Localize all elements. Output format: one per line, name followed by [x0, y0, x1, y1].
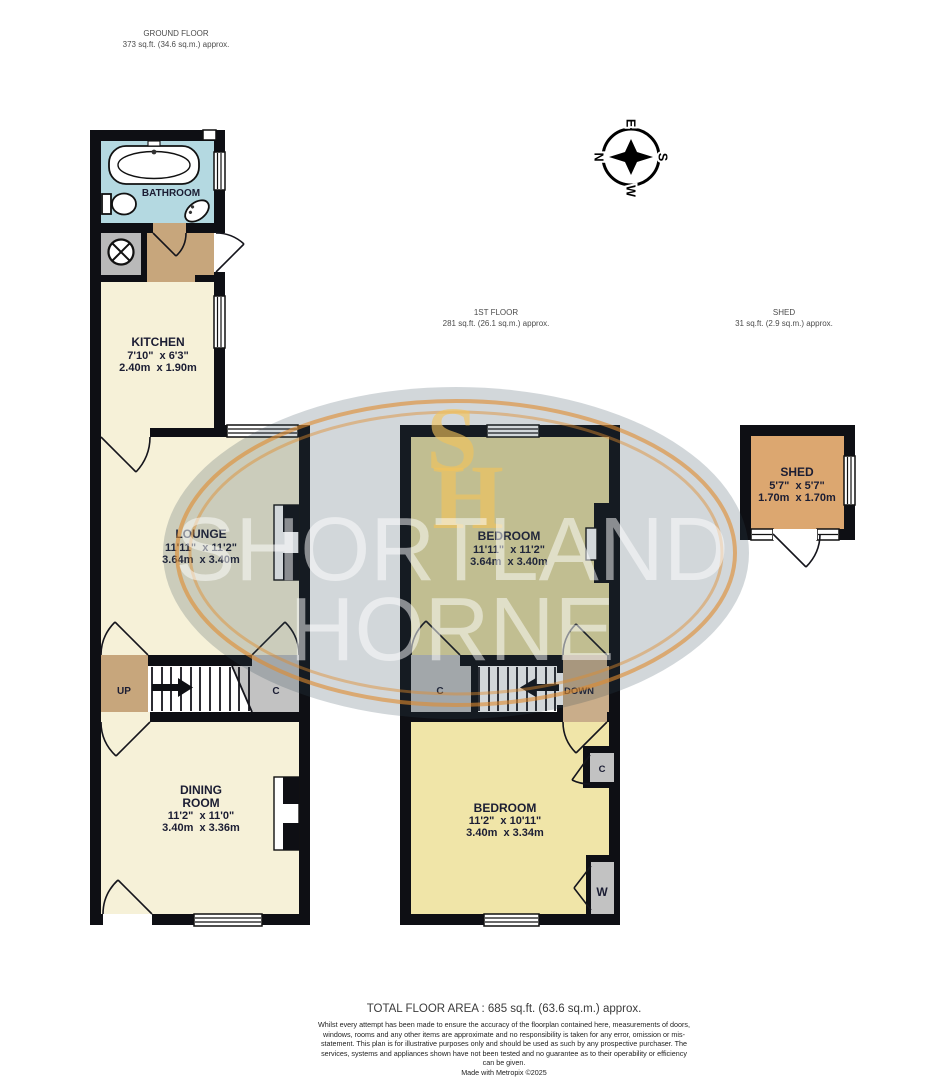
window	[214, 296, 225, 348]
lobby-area	[147, 233, 214, 282]
bathroom-label: BATHROOM	[142, 188, 200, 199]
cupboard-label: C	[272, 686, 279, 697]
bathtub-icon	[109, 141, 199, 184]
shed-dims-metric: 1.70m x 1.70m	[758, 492, 836, 504]
compass-north-label: N	[592, 152, 606, 161]
disclaimer-text: Whilst every attempt has been made to en…	[318, 1020, 690, 1068]
door-opening	[101, 425, 150, 437]
compass-icon: E N S W	[592, 119, 670, 197]
window	[484, 914, 539, 926]
exterior-door-gap	[103, 914, 152, 925]
shortland-horne-watermark: S H SHORTLAND HORNE	[163, 387, 749, 719]
compass-south-label: S	[656, 153, 670, 161]
exterior-door-gap	[214, 233, 225, 272]
bedroom2-dims-metric: 3.40m x 3.34m	[466, 827, 544, 839]
metropix-credit: Made with Metropix ©2025	[318, 1068, 690, 1078]
dining-dims-imperial: 11'2" x 11'0"	[168, 810, 234, 822]
window	[203, 130, 216, 140]
dining-label-1: DINING	[180, 783, 222, 797]
footer: TOTAL FLOOR AREA : 685 sq.ft. (63.6 sq.m…	[318, 1003, 690, 1078]
kitchen-label: KITCHEN	[131, 335, 184, 349]
door-opening	[153, 223, 186, 234]
compass-star	[609, 139, 653, 175]
exterior-door-gap	[773, 529, 817, 540]
shed-dims-imperial: 5'7" x 5'7"	[769, 480, 824, 492]
wall	[195, 275, 214, 282]
compass-west-label: W	[624, 185, 638, 197]
shed-plan: SHED 5'7" x 5'7" 1.70m x 1.70m	[740, 425, 855, 567]
bedroom2-label: BEDROOM	[474, 801, 537, 815]
wardrobe-label: W	[596, 885, 608, 899]
kitchen-dims-imperial: 7'10" x 6'3"	[127, 350, 189, 362]
window	[844, 456, 855, 505]
appliance-icon	[109, 240, 134, 265]
bedroom2-dims-imperial: 11'2" x 10'11"	[469, 815, 542, 827]
dining-dims-metric: 3.40m x 3.36m	[162, 822, 240, 834]
compass-east-label: E	[624, 119, 638, 127]
shed-label: SHED	[780, 465, 814, 479]
floorplan-page: GROUND FLOOR 373 sq.ft. (34.6 sq.m.) app…	[0, 0, 945, 1080]
dining-label-2: ROOM	[182, 796, 219, 810]
closet-cupboard-label: C	[599, 764, 606, 775]
door-opening	[101, 655, 148, 666]
door-opening	[563, 712, 607, 722]
window	[194, 914, 262, 926]
kitchen-dims-metric: 2.40m x 1.90m	[119, 362, 197, 374]
watermark-word-2: HORNE	[289, 580, 614, 680]
window	[214, 152, 225, 190]
stairs-up-label: UP	[117, 686, 131, 697]
door-opening	[101, 712, 150, 722]
toilet-icon	[102, 194, 136, 215]
floorplan-drawing: BATHROOM KITCHEN 7'10" x 6'3" 2.40m x 1.…	[0, 0, 945, 1080]
chimney-breast	[274, 777, 299, 850]
total-floor-area: TOTAL FLOOR AREA : 685 sq.ft. (63.6 sq.m…	[318, 1003, 690, 1015]
